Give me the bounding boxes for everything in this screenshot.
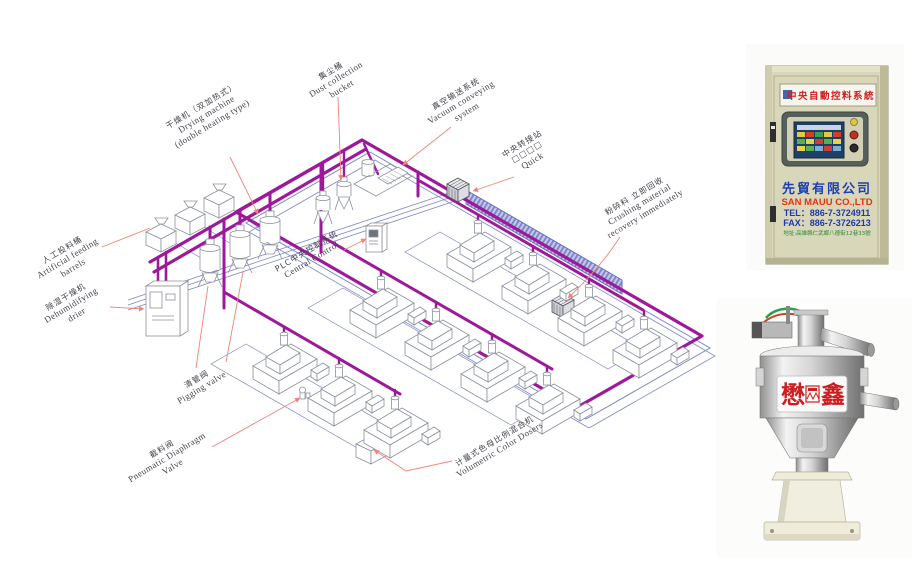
feeding-barrel <box>146 218 176 252</box>
dust-collection-bucket <box>314 191 332 224</box>
hopper-loader-photo: 懋 鑫 <box>716 298 912 558</box>
drying-hopper <box>228 225 252 273</box>
company-tel: TEL：886-7-3724911 <box>784 208 871 218</box>
pneumatic-diaphragm-valve <box>300 387 311 399</box>
base-top-plate <box>772 472 852 480</box>
company-address: 地址:高雄縣仁武鄉八德街12巷33號 <box>783 229 871 237</box>
indicator-lamp-yellow <box>851 119 858 126</box>
company-fax: FAX：886-7-3726213 <box>783 218 871 228</box>
touchscreen[interactable] <box>794 122 844 158</box>
cabinet-vent-upper <box>770 122 776 142</box>
control-cabinet-photo: 中央自動控料系統 先貿有限公司 SAN MAUU CO.,LTD TEL：886… <box>746 44 904 270</box>
drying-hopper <box>198 239 222 287</box>
drying-hopper <box>258 211 282 259</box>
feeding-barrel <box>204 184 234 218</box>
cabinet-banner-text: 中央自動控料系統 <box>787 90 875 102</box>
push-button-black[interactable] <box>850 144 858 152</box>
feeding-barrel <box>175 201 205 235</box>
brand-char-right: 鑫 <box>821 381 845 409</box>
cabinet-vent-lower <box>770 206 776 222</box>
brand-char-left: 懋 <box>781 381 805 409</box>
dust-collection-bucket <box>335 177 353 210</box>
push-button-red[interactable] <box>850 131 858 139</box>
company-name-zh: 先貿有限公司 <box>782 181 872 197</box>
isometric-plant-diagram <box>102 97 715 471</box>
company-name-en: SAN MAUU CO.,LTD <box>781 197 872 208</box>
dehumidifying-drier <box>146 281 188 336</box>
central-conveying-system-page: 中央自動控料系統 先貿有限公司 SAN MAUU CO.,LTD TEL：886… <box>0 0 912 562</box>
